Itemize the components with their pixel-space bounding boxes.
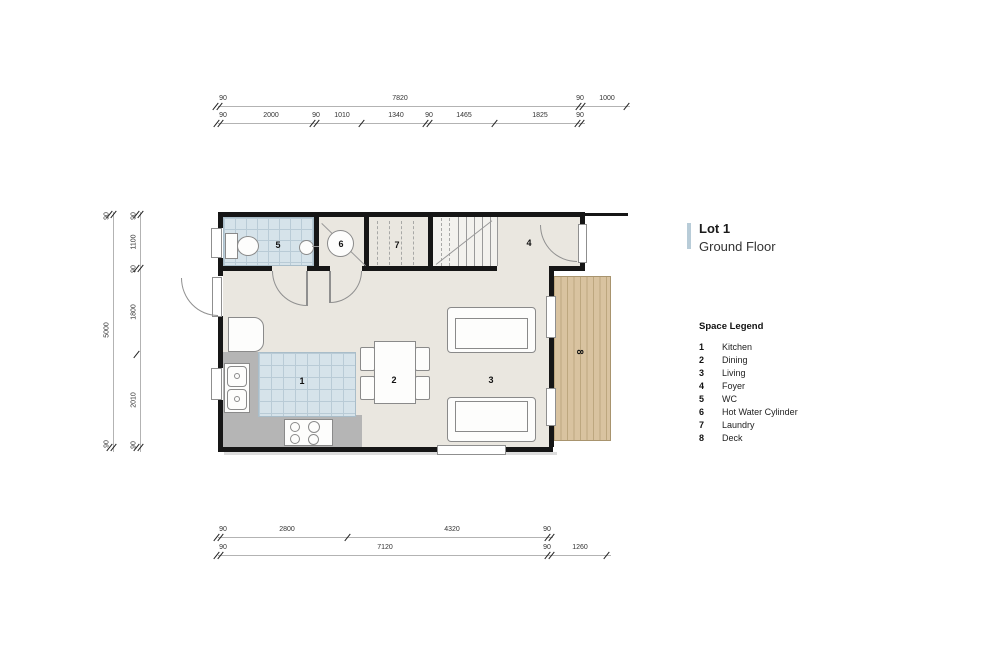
stair-tread	[474, 217, 475, 266]
legend-num: 3	[699, 368, 704, 378]
room-label-laundry: 7	[394, 240, 399, 250]
sofa-seat	[455, 318, 528, 349]
dim-label: 2000	[263, 112, 279, 119]
kitchen-tile-floor	[258, 352, 356, 417]
legend-num: 6	[699, 407, 704, 417]
wall	[218, 447, 437, 452]
wall	[218, 400, 223, 452]
dimension-tick	[578, 102, 586, 111]
basin-tap	[312, 246, 319, 247]
legend-num: 2	[699, 355, 704, 365]
dimension-tick	[547, 533, 555, 542]
room-label-wc: 5	[275, 240, 280, 250]
dim-label: 90	[131, 212, 138, 220]
dining-chair	[415, 347, 430, 371]
dimension-tick	[547, 551, 555, 560]
wc-basin	[299, 240, 314, 255]
dim-label: 1100	[131, 234, 138, 249]
dim-label: 90	[104, 212, 111, 220]
dim-label: 90	[104, 440, 111, 448]
dim-label: 1000	[599, 95, 615, 102]
wall	[549, 426, 554, 447]
dim-label: 2010	[131, 392, 138, 408]
dining-chair	[360, 376, 375, 400]
sink-drain	[234, 396, 240, 402]
deck-surface	[553, 276, 611, 441]
wall	[218, 212, 223, 228]
dimension-tick	[347, 533, 355, 542]
sink-drain	[234, 373, 240, 379]
laundry-dash	[389, 221, 390, 265]
dimension-tick	[216, 533, 224, 542]
fridge	[228, 317, 264, 352]
dimension-tick	[425, 119, 433, 128]
dimension-line	[218, 123, 585, 124]
floor-title: Ground Floor	[699, 239, 776, 254]
legend-label: Dining	[722, 355, 748, 365]
legend-heading: Space Legend	[699, 321, 763, 332]
dimension-tick	[216, 119, 224, 128]
legend-label: Living	[722, 368, 746, 378]
dimension-line	[113, 212, 114, 452]
legend-num: 1	[699, 342, 704, 352]
legend-label: Deck	[722, 433, 743, 443]
legend-item: 1 Kitchen	[699, 342, 859, 355]
dimension-line	[218, 537, 553, 538]
dining-chair	[360, 347, 375, 371]
dim-label: 90	[131, 441, 138, 449]
wall	[506, 447, 553, 452]
side-door-swing	[181, 278, 218, 316]
wall	[428, 217, 433, 266]
wall	[314, 217, 319, 266]
room-label-foyer: 4	[526, 238, 531, 248]
wall	[549, 266, 585, 271]
dimension-tick	[136, 350, 144, 359]
legend-item: 6 Hot Water Cylinder	[699, 407, 859, 420]
dim-label: 1010	[334, 112, 350, 119]
dim-label: 1465	[456, 112, 472, 119]
dim-label: 90	[543, 526, 551, 533]
dim-label: 90	[576, 95, 584, 102]
legend-label: WC	[722, 394, 737, 404]
dim-label: 90	[576, 112, 584, 119]
wall	[362, 266, 497, 271]
dining-chair	[415, 376, 430, 400]
legend-item: 7 Laundry	[699, 420, 859, 433]
living-window-east	[546, 388, 556, 426]
floor-plan-sheet: 1 2 3 4 5 6 7 8 90 7820 90 1000 90 2000 …	[0, 0, 1000, 667]
dim-label: 5000	[104, 322, 111, 338]
wall	[218, 316, 223, 368]
entry-door-frame	[578, 224, 587, 263]
legend-item: 5 WC	[699, 394, 859, 407]
dimension-tick	[577, 119, 585, 128]
dim-label: 90	[543, 544, 551, 551]
canopy-line	[585, 213, 628, 216]
room-label-kitchen: 1	[299, 376, 304, 386]
stair-tread	[490, 217, 491, 266]
dim-label: 7820	[392, 95, 408, 102]
dimension-tick	[626, 102, 634, 111]
dim-label: 4320	[444, 526, 460, 533]
stairs-edge	[497, 217, 498, 266]
dim-label: 1260	[572, 544, 588, 551]
lot-title: Lot 1	[699, 221, 730, 236]
legend-num: 7	[699, 420, 704, 430]
room-label-living: 3	[488, 375, 493, 385]
dimension-tick	[215, 102, 223, 111]
wall	[307, 266, 330, 271]
dim-label: 90	[131, 265, 138, 273]
legend-item: 2 Dining	[699, 355, 859, 368]
title-accent-bar	[687, 223, 691, 249]
room-label-hwc: 6	[338, 239, 343, 249]
stair-tread	[458, 217, 459, 266]
wall	[549, 338, 554, 388]
dimension-tick	[361, 119, 369, 128]
legend-item: 3 Living	[699, 368, 859, 381]
dining-table	[374, 341, 416, 404]
wall	[549, 271, 554, 296]
legend-label: Hot Water Cylinder	[722, 407, 798, 417]
dimension-line	[140, 212, 141, 452]
dim-label: 2800	[279, 526, 295, 533]
room-label-dining: 2	[391, 375, 396, 385]
laundry-dash	[401, 221, 402, 265]
wall	[218, 266, 272, 271]
dim-label: 90	[219, 544, 227, 551]
deck-slider-door	[546, 296, 556, 338]
dim-label: 90	[312, 112, 320, 119]
plan-shadow	[224, 452, 557, 455]
stair-tread	[482, 217, 483, 266]
dim-label: 90	[219, 112, 227, 119]
legend-num: 5	[699, 394, 704, 404]
living-window-south	[437, 445, 506, 455]
legend-item: 8 Deck	[699, 433, 859, 446]
dimension-tick	[606, 551, 614, 560]
legend-item: 4 Foyer	[699, 381, 859, 394]
burner	[308, 421, 320, 433]
legend-label: Laundry	[722, 420, 755, 430]
dimension-line	[218, 106, 630, 107]
laundry-dash	[413, 221, 414, 265]
legend-num: 4	[699, 381, 704, 391]
toilet-bowl	[237, 236, 259, 256]
legend-label: Kitchen	[722, 342, 752, 352]
hwc-door-leaf	[329, 271, 331, 303]
wc-door-leaf	[306, 271, 308, 306]
dim-label: 1800	[131, 304, 138, 320]
wc-window	[211, 228, 222, 258]
wall	[364, 217, 369, 266]
legend-num: 8	[699, 433, 704, 443]
laundry-dash	[377, 221, 378, 265]
dim-label: 1340	[388, 112, 404, 119]
stair-dash-line	[449, 218, 450, 266]
dim-label: 90	[219, 526, 227, 533]
wall	[218, 212, 585, 217]
dimension-tick	[494, 119, 502, 128]
dim-label: 90	[219, 95, 227, 102]
dim-label: 90	[425, 112, 433, 119]
dimension-tick	[312, 119, 320, 128]
dim-label: 7120	[377, 544, 393, 551]
burner	[290, 422, 300, 432]
burner	[290, 434, 300, 444]
kitchen-window	[211, 368, 222, 400]
legend-label: Foyer	[722, 381, 745, 391]
burner	[308, 434, 319, 445]
dimension-tick	[216, 551, 224, 560]
dim-label: 1825	[532, 112, 548, 119]
room-label-deck: 8	[575, 349, 585, 354]
sofa-seat	[455, 401, 528, 432]
